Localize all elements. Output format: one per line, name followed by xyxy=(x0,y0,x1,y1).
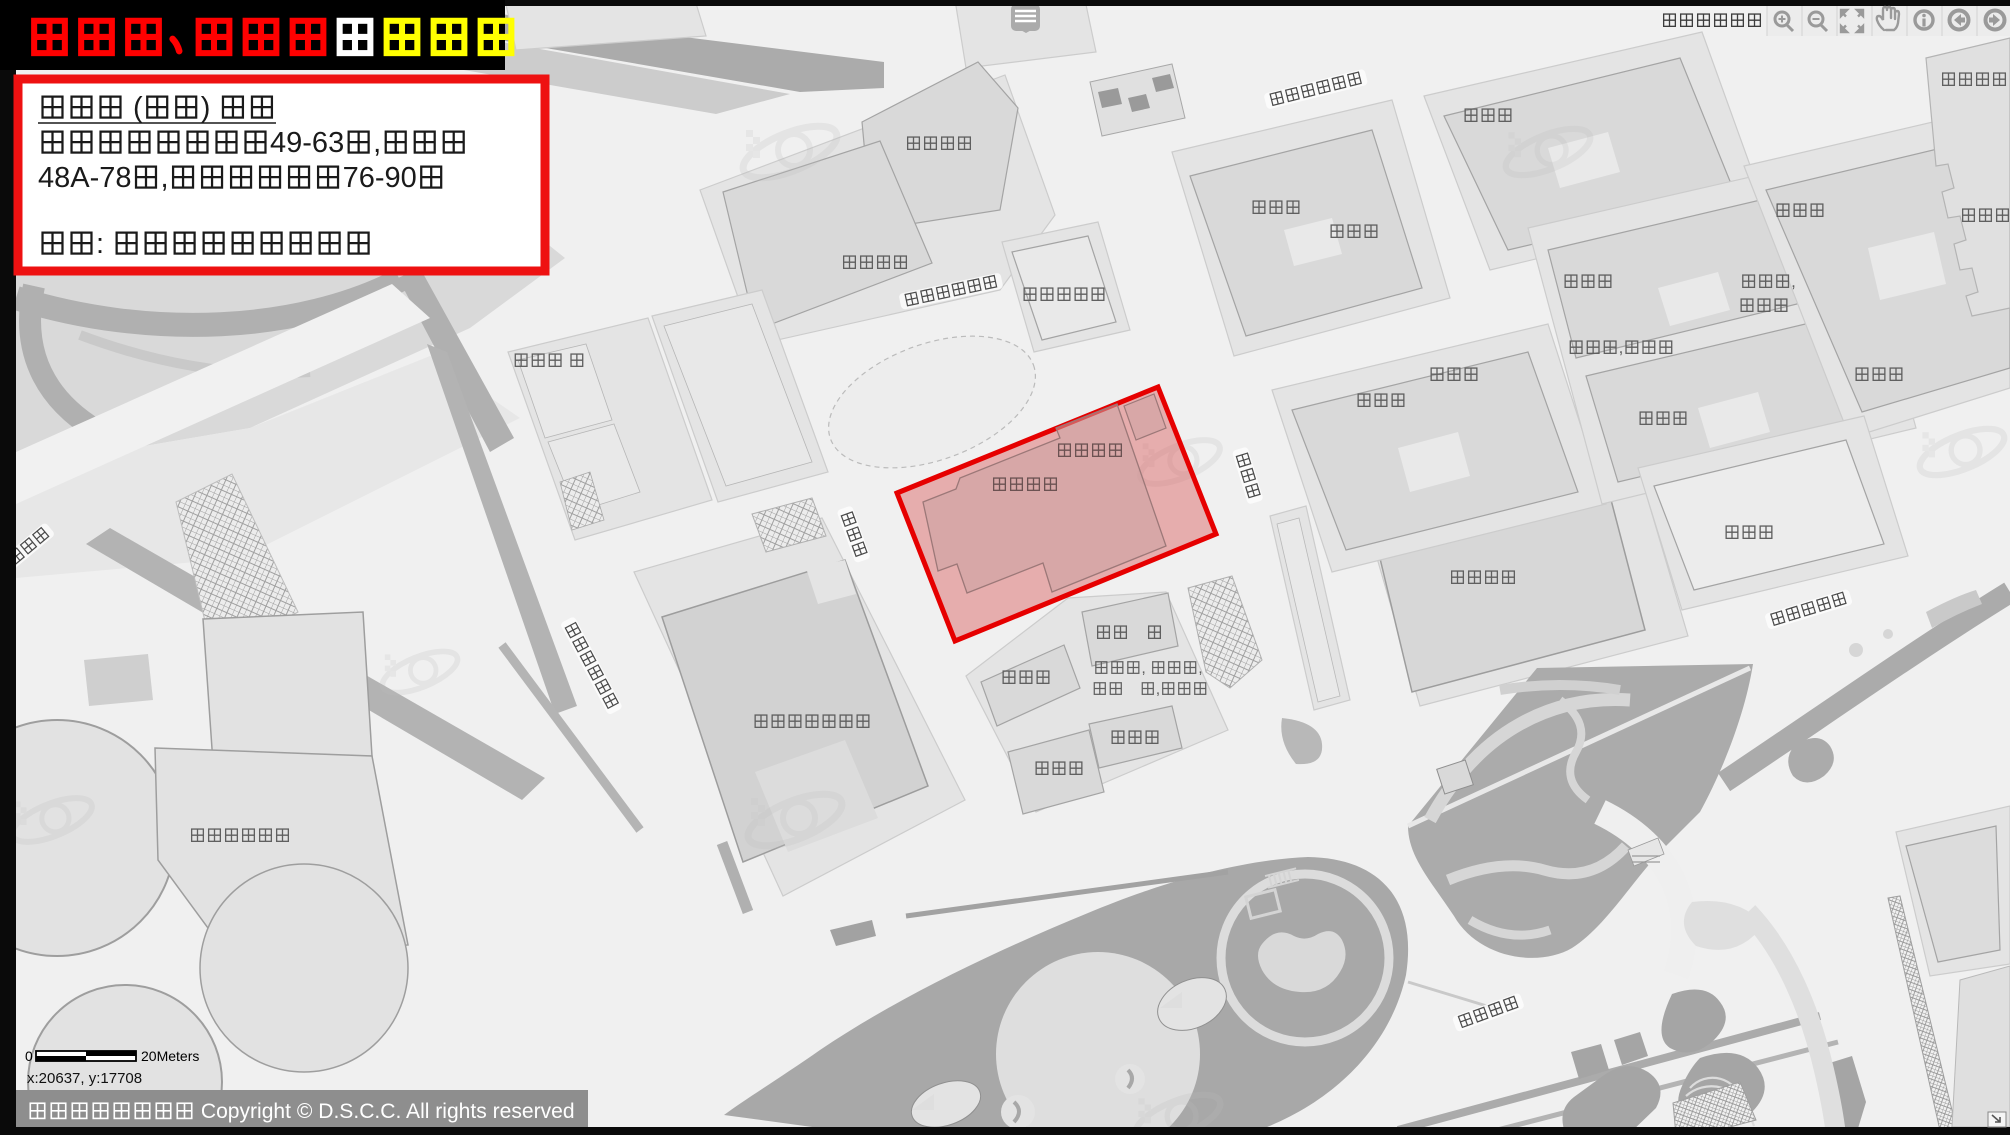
svg-text:0: 0 xyxy=(25,1048,33,1064)
svg-text:,: , xyxy=(1141,660,1150,677)
svg-text:,: , xyxy=(1198,660,1202,677)
svg-text:48A-78: 48A-78 xyxy=(38,162,132,194)
svg-text:,: , xyxy=(161,162,169,194)
svg-text:49-63: 49-63 xyxy=(270,127,344,159)
svg-text:,: , xyxy=(373,127,381,159)
svg-text:,: , xyxy=(1156,681,1160,698)
svg-text:(: ( xyxy=(125,92,143,124)
svg-text:): ) xyxy=(201,92,219,124)
svg-text:x:20637, y:17708: x:20637, y:17708 xyxy=(27,1070,142,1087)
svg-text:,: , xyxy=(1619,338,1624,357)
svg-text::: : xyxy=(96,228,112,260)
svg-text:76-90: 76-90 xyxy=(343,162,417,194)
svg-text:Copyright © D.S.C.C. All right: Copyright © D.S.C.C. All rights reserved xyxy=(195,1100,575,1123)
svg-text:20Meters: 20Meters xyxy=(141,1048,199,1064)
svg-text:,: , xyxy=(1791,272,1796,291)
